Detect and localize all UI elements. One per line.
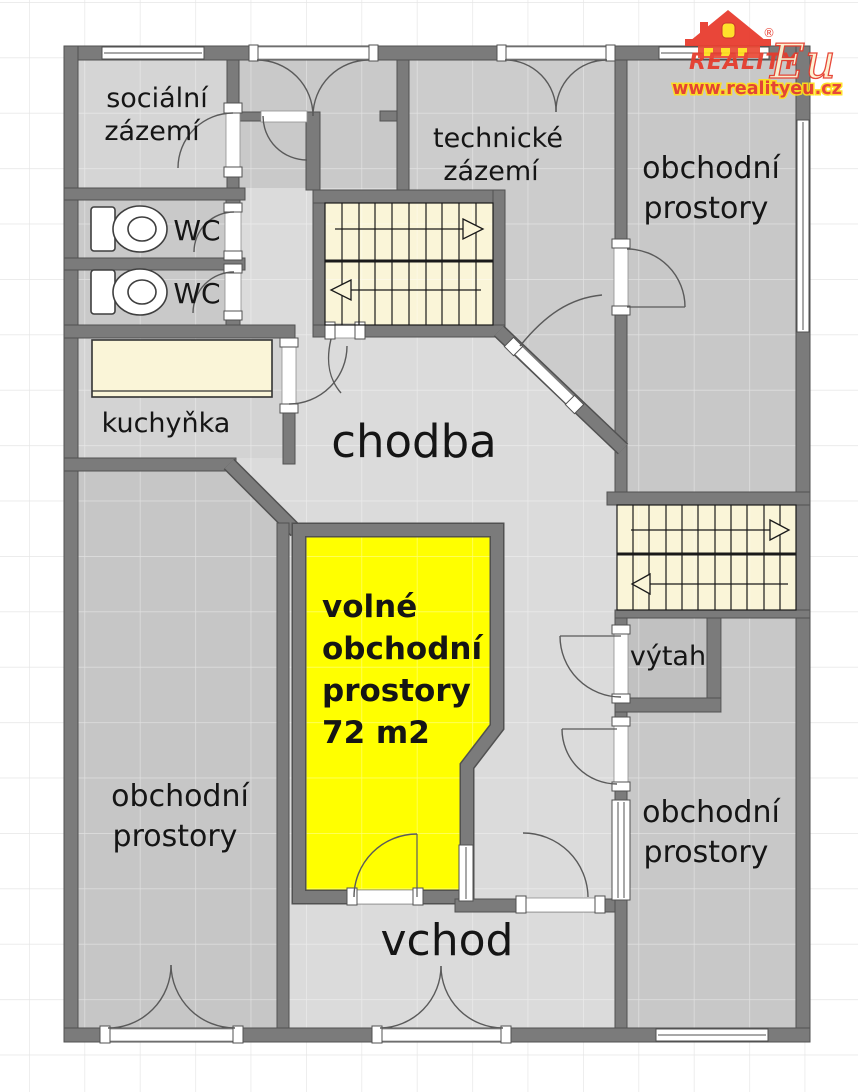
door-opening-obchodni-bottom-left	[106, 1029, 237, 1041]
door-opening-kuchynka	[282, 346, 296, 405]
wall-stub	[380, 111, 397, 121]
wall-right-stairs-top	[607, 492, 810, 505]
floor-plan-image: sociální zázemí WC WC kuchyňka chodba te…	[0, 0, 858, 1092]
label-vytah: výtah	[630, 641, 706, 672]
window-interior-corridor	[612, 800, 630, 900]
wall-vestibule-vertical	[306, 112, 320, 190]
wall-stairs-top	[313, 190, 505, 203]
wall-vytah-bottom	[615, 698, 721, 712]
logo-website-url: www.realityeu.cz	[672, 79, 842, 99]
kitchen-counter-icon	[92, 340, 272, 397]
label-socialni-line1: sociální	[106, 83, 209, 114]
label-obchodni-bottom-right-line1: obchodní	[642, 795, 781, 830]
label-wc-top: WC	[173, 214, 220, 247]
door-opening-wc-top	[225, 211, 241, 253]
wall-stairs-right	[493, 190, 505, 337]
label-kuchynka: kuchyňka	[102, 408, 231, 439]
wall-bottom-left-room-top	[64, 458, 236, 471]
wall-kuchynka-top	[64, 325, 295, 338]
label-volne-line4: 72 m2	[322, 715, 430, 751]
door-opening-vytah	[614, 633, 628, 695]
label-volne-line2: obchodní	[322, 631, 483, 667]
door-opening-vestibule-entry	[255, 47, 372, 59]
floor-plan-svg: sociální zázemí WC WC kuchyňka chodba te…	[0, 0, 858, 1092]
wall-below-socialni	[64, 188, 245, 200]
label-volne-line3: prostory	[322, 673, 471, 709]
wall-right-stairs-bottom	[615, 610, 810, 618]
door-opening-wc-bottom	[225, 272, 241, 312]
door-opening-technicke-entry	[503, 47, 609, 59]
label-chodba: chodba	[331, 415, 497, 468]
door-opening-socialni	[226, 112, 240, 168]
label-technicke-line2: zázemí	[443, 156, 540, 187]
wall-technicke-left	[397, 60, 409, 190]
label-obchodni-bottom-left-line2: prostory	[113, 819, 238, 854]
label-obchodni-top-right-line2: prostory	[644, 191, 769, 226]
door-opening-obchodni-top-right	[614, 247, 628, 307]
label-technicke-line1: technické	[433, 123, 563, 154]
label-obchodni-top-right-line1: obchodní	[642, 151, 781, 186]
wall-wc-divider	[64, 258, 245, 270]
toilet-icon	[91, 206, 167, 252]
toilet-icon	[91, 269, 167, 315]
wall-stairs-left	[313, 190, 325, 337]
door-opening-volne	[352, 890, 418, 904]
label-socialni-line2: zázemí	[104, 116, 201, 147]
door-opening-corridor-vchod	[521, 898, 599, 912]
label-vchod: vchod	[381, 915, 514, 966]
wall-bottom-left-room-right	[277, 523, 289, 1028]
label-obchodni-bottom-left-line1: obchodní	[111, 779, 250, 814]
label-volne-line1: volné	[322, 589, 417, 625]
door-opening-vchod-main	[378, 1029, 505, 1041]
label-wc-bottom: WC	[173, 277, 220, 310]
door-opening-obchodni-bottom-right	[614, 725, 628, 783]
label-obchodni-bottom-right-line2: prostory	[644, 835, 769, 870]
door-opening-vestibule-inner	[261, 111, 307, 122]
